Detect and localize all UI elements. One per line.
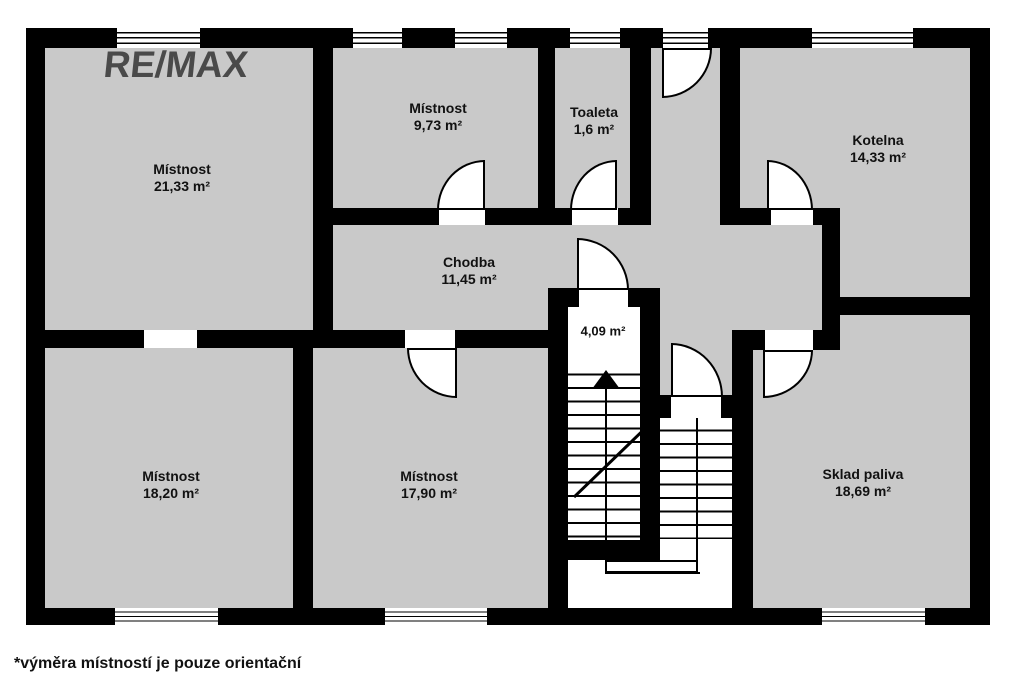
staircase-area-label: 4,09 m² [581, 323, 626, 340]
room-label-973: Místnost 9,73 m² [409, 100, 467, 134]
window-kotelna [812, 28, 913, 48]
doorway-kotelna [771, 208, 813, 225]
room-name: Toaleta [570, 104, 618, 121]
room-area: 18,69 m² [823, 483, 904, 500]
floor-plan: Místnost 21,33 m² Místnost 9,73 m² Toale… [0, 0, 1024, 683]
wall-toaleta-entry [630, 48, 651, 208]
wall-entry-kotelna [720, 48, 740, 225]
room-label-1790: Místnost 17,90 m² [400, 468, 458, 502]
disclaimer-note: *výměra místností je pouze orientační [14, 655, 301, 673]
window-toaleta [570, 28, 620, 48]
room-area: 21,33 m² [153, 178, 211, 195]
doorway-staircase-landing [579, 288, 628, 307]
wall-room1820-1790 [293, 348, 313, 608]
room-area: 14,33 m² [850, 149, 906, 166]
doorway-room973 [439, 208, 485, 225]
room-area: 18,20 m² [142, 485, 200, 502]
window-room973-right [455, 28, 507, 48]
stair-landing-edge-line [605, 572, 700, 574]
wall-room973-toaleta [538, 48, 555, 208]
room-area: 4,09 m² [581, 323, 626, 340]
doorway-basement-stairs [671, 395, 721, 418]
doorway-toaleta [572, 208, 618, 225]
wall-staircase-left [548, 288, 568, 625]
window-room1790 [385, 608, 487, 625]
window-room1820 [115, 608, 218, 625]
window-room973-left [353, 28, 402, 48]
wall-outer-left [26, 28, 45, 625]
stair-divider-line [696, 418, 698, 574]
room-area: 9,73 m² [409, 117, 467, 134]
room-label-chodba: Chodba 11,45 m² [441, 254, 496, 288]
wall-between-flights [640, 288, 660, 560]
room-label-1820: Místnost 18,20 m² [142, 468, 200, 502]
room-name: Místnost [142, 468, 200, 485]
room-name: Místnost [409, 100, 467, 117]
room-name: Místnost [400, 468, 458, 485]
stair-direction-arrow [592, 370, 620, 389]
room-label-sklad: Sklad paliva 18,69 m² [823, 466, 904, 500]
window-sklad [822, 608, 925, 625]
wall-flight-bottom-band [568, 540, 660, 560]
room-label-kotelna: Kotelna 14,33 m² [850, 132, 906, 166]
doorway-room1820 [144, 330, 197, 348]
wall-staircase-sklad [732, 330, 753, 608]
doorway-room1790 [405, 330, 455, 348]
window-entry-door-glazing [663, 28, 708, 48]
room-name: Sklad paliva [823, 466, 904, 483]
remax-logo: RE/MAX [102, 46, 250, 83]
wall-chodba-bottom [45, 330, 568, 348]
room-area: 11,45 m² [441, 271, 496, 288]
wall-room2133-right [313, 48, 333, 348]
room-area: 17,90 m² [400, 485, 458, 502]
room-area: 1,6 m² [570, 121, 618, 138]
room-label-toaleta: Toaleta 1,6 m² [570, 104, 618, 138]
room-name: Kotelna [850, 132, 906, 149]
wall-outer-right [970, 28, 990, 625]
room-name: Místnost [153, 161, 211, 178]
room-label-2133: Místnost 21,33 m² [153, 161, 211, 195]
room-name: Chodba [441, 254, 496, 271]
wall-annex-kotelna [822, 208, 840, 348]
doorway-sklad [765, 330, 813, 350]
wall-kotelna-sklad [840, 297, 970, 315]
